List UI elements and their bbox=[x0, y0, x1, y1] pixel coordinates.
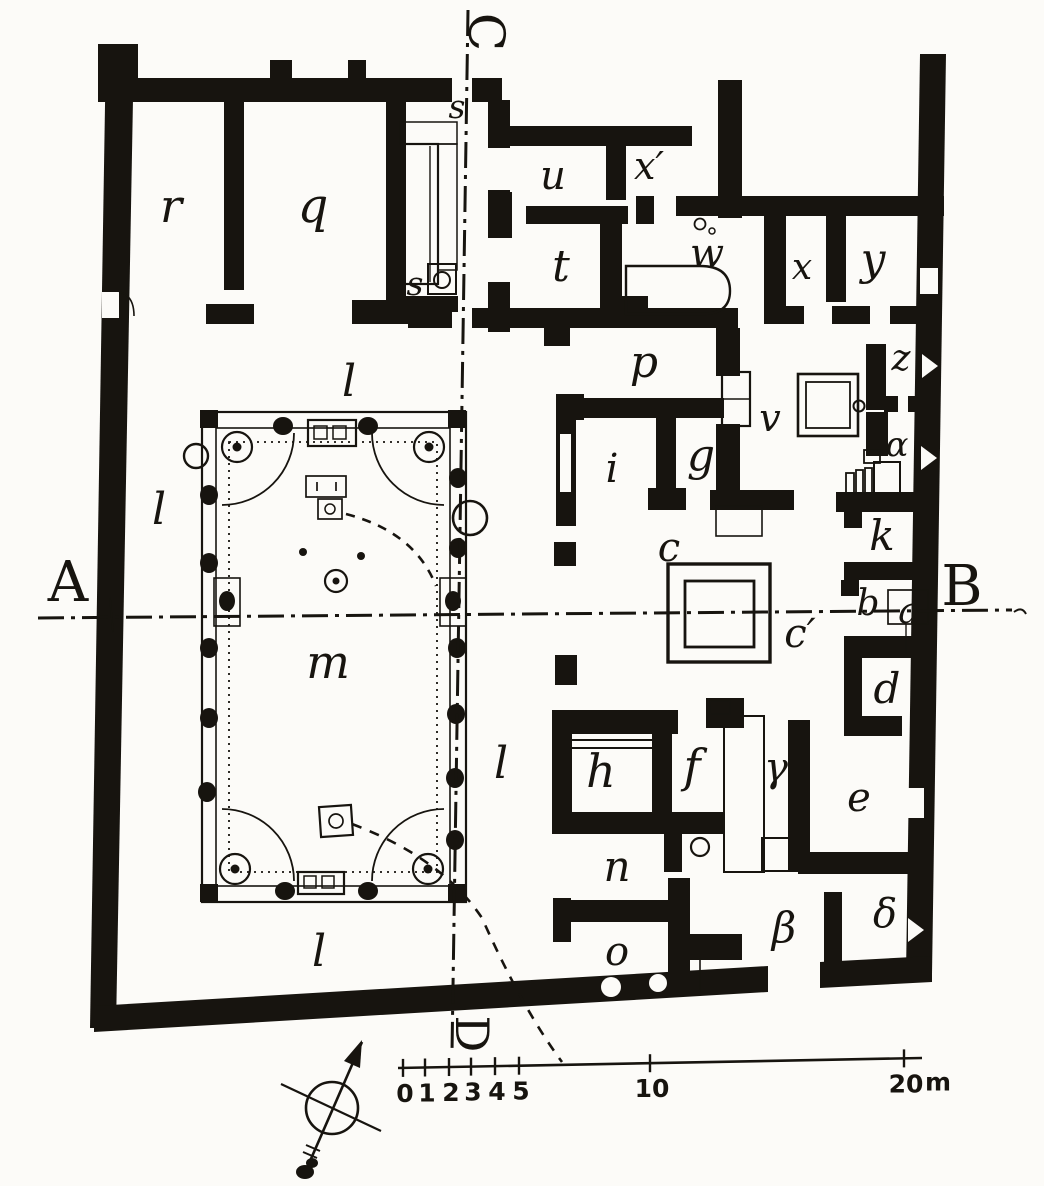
room-u: u bbox=[540, 153, 566, 199]
stylobate-piers bbox=[214, 578, 466, 626]
room-w: w bbox=[690, 231, 724, 277]
room-q: q bbox=[298, 178, 329, 234]
section-marker-b: B bbox=[941, 554, 982, 619]
scale-bar: 0123451020m bbox=[396, 1049, 951, 1108]
scale-unit-label: m bbox=[925, 1068, 951, 1097]
room-x: x bbox=[792, 247, 812, 288]
door-v: v bbox=[759, 396, 781, 440]
room-z: z bbox=[891, 338, 912, 379]
corridor-l-right: l bbox=[494, 738, 508, 789]
room-t: t bbox=[552, 241, 570, 292]
room-i: i bbox=[606, 446, 619, 492]
well-head-west bbox=[184, 444, 208, 468]
room-alpha: α bbox=[886, 425, 909, 465]
atrium-c: c bbox=[658, 525, 680, 571]
section-marker-d: D bbox=[445, 1016, 499, 1053]
room-r: r bbox=[160, 179, 185, 233]
room-k: k bbox=[869, 511, 894, 560]
passage-beta: β bbox=[770, 903, 796, 952]
compass-rose-icon bbox=[281, 1040, 381, 1179]
room-d: d bbox=[874, 664, 901, 713]
room-s-upper: s bbox=[449, 87, 466, 126]
room-e: e bbox=[847, 775, 871, 821]
room-n: n bbox=[603, 842, 630, 891]
section-marker-a: A bbox=[47, 550, 89, 615]
cistern-head bbox=[691, 838, 709, 856]
corridor-l-left: l bbox=[152, 484, 166, 535]
section-marker-c: C bbox=[457, 13, 515, 51]
label-c-prime: c′ bbox=[784, 611, 815, 657]
room-g: g bbox=[687, 430, 715, 481]
labels: ABCDrqssux′twxypvzαigckbac′dehfγnβδollll… bbox=[47, 13, 983, 1053]
corridor-l-bottom: l bbox=[312, 926, 326, 977]
room-h: h bbox=[586, 744, 616, 798]
room-y: y bbox=[859, 234, 887, 285]
room-delta: δ bbox=[873, 891, 897, 937]
stair-gamma: γ bbox=[764, 745, 788, 791]
window-slot bbox=[560, 434, 571, 492]
scale-number-10: 10 bbox=[635, 1074, 670, 1103]
small-circle-feature bbox=[695, 219, 706, 230]
scale-number-4: 4 bbox=[488, 1077, 505, 1106]
scale-number-5: 5 bbox=[512, 1077, 529, 1106]
floor-plan-drawing: 0123451020m ABCDrqssux′twxypvzαigckbac′d… bbox=[0, 0, 1044, 1186]
scale-number-3: 3 bbox=[464, 1078, 481, 1107]
room-o: o bbox=[605, 929, 629, 975]
room-b: b bbox=[856, 583, 879, 624]
shrine-near-v bbox=[798, 374, 865, 436]
scale-number-20: 20 bbox=[889, 1069, 924, 1098]
room-s-lower: s bbox=[407, 264, 424, 303]
scale-number-2: 2 bbox=[442, 1078, 459, 1107]
altar-block bbox=[716, 506, 762, 536]
well-head-east bbox=[453, 501, 487, 535]
corridor-p: p bbox=[630, 337, 658, 388]
floor-plan-page: 0123451020m ABCDrqssux′twxypvzαigckbac′d… bbox=[0, 0, 1044, 1186]
door-leaf-v bbox=[722, 372, 750, 426]
corridor-l-top: l bbox=[342, 356, 356, 407]
room-f: f bbox=[680, 739, 707, 793]
entrance-a: a bbox=[898, 591, 919, 632]
scale-number-0: 0 bbox=[396, 1079, 413, 1108]
scale-number-1: 1 bbox=[418, 1078, 435, 1107]
room-x-prime: x′ bbox=[634, 144, 664, 188]
outer-walls bbox=[90, 44, 946, 1032]
peristyle-m: m bbox=[306, 635, 350, 689]
